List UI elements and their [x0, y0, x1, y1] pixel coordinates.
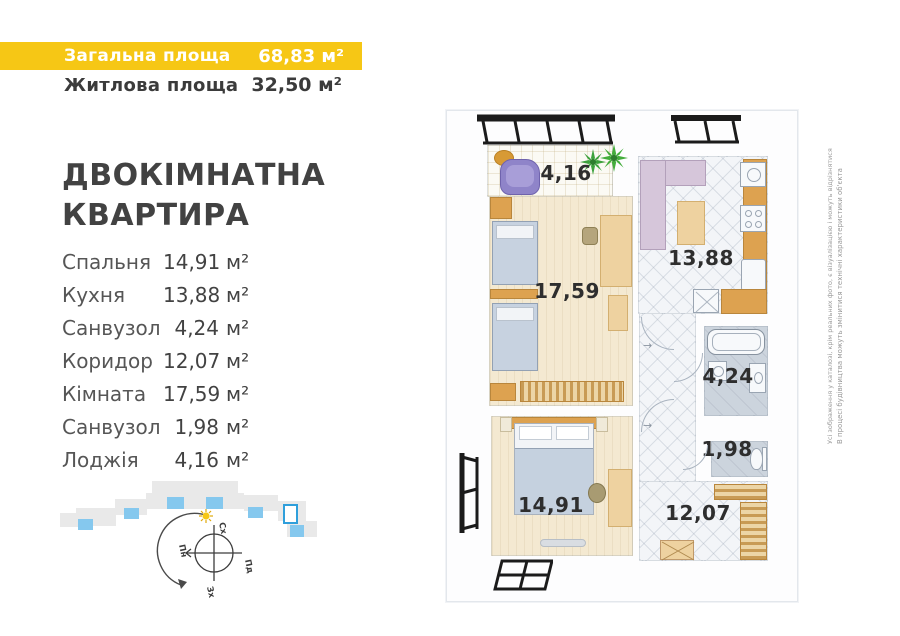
plant-icon — [600, 144, 628, 172]
kitchen-window-icon — [669, 113, 743, 147]
floor-plan: 4,16 17,59 — [446, 110, 798, 602]
site-building-block — [152, 481, 238, 493]
compass-south-label: Пд — [242, 559, 255, 575]
sink-icon — [740, 162, 766, 187]
site-building-block — [60, 513, 78, 527]
nightstand-icon — [490, 289, 538, 299]
compass-cross-icon — [186, 525, 242, 581]
room-area: 13,88 — [163, 283, 219, 307]
living-area-label: Житлова площа — [64, 75, 238, 96]
sofa-icon — [640, 160, 666, 250]
list-item: Спальня 14,91 м² — [62, 250, 258, 283]
room-name: Кухня — [62, 283, 163, 307]
room-name: Лоджія — [62, 448, 163, 472]
corridor-area-label: 12,07 — [665, 501, 731, 525]
bedroom-bottom-window-icon — [491, 557, 553, 593]
burner — [745, 210, 752, 217]
total-area-badge: Загальна площа 68,83 м² — [0, 42, 362, 70]
shelf-icon — [608, 295, 628, 331]
vent-tile-icon — [693, 289, 719, 313]
room-area: 4,16 — [163, 448, 219, 472]
nightstand-icon — [500, 417, 512, 432]
desk-icon — [608, 469, 632, 527]
site-building-section-blue — [124, 508, 139, 519]
bathtub-icon — [707, 329, 765, 355]
room-bedroom — [491, 416, 633, 556]
living-area-value: 32,50 м² — [251, 74, 342, 96]
list-item: Кухня 13,88 м² — [62, 283, 258, 316]
wc-area-label: 1,98 — [701, 437, 752, 461]
disclaimer-text: Усі зображення у каталозі, крім реальних… — [826, 148, 845, 444]
room-area: 1,98 — [163, 415, 219, 439]
armchair-cushion — [506, 165, 534, 187]
kitchen-area-label: 13,88 — [668, 246, 734, 270]
page-title: ДВОКІМНАТНА КВАРТИРА — [62, 156, 325, 236]
pillow-icon — [556, 426, 589, 440]
fridge-icon — [741, 259, 766, 291]
page-title-line2: КВАРТИРА — [62, 196, 325, 236]
room-area: 12,07 — [163, 349, 219, 373]
site-building-section-blue — [78, 519, 93, 530]
site-building-section-blue — [290, 525, 304, 537]
hall-wardrobe-icon — [714, 484, 767, 500]
room-name: Коридор — [62, 349, 163, 373]
sun-icon — [199, 509, 213, 523]
shoe-bench-icon — [660, 540, 694, 560]
room-unit: м² — [226, 316, 258, 340]
door-arc-wc — [683, 445, 708, 470]
room-unit: м² — [226, 382, 258, 406]
current-unit-highlight[interactable] — [283, 504, 298, 524]
cabinet-icon — [490, 197, 512, 219]
room-name: Санвузол — [62, 316, 163, 340]
room-name: Кімната — [62, 382, 163, 406]
disclaimer-construction-note: В процесі будівництва можуть змінитися т… — [835, 148, 845, 444]
bedroom-area-label: 14,91 — [518, 493, 584, 517]
compass-east-label: Сх — [216, 522, 228, 536]
list-item: Санвузол 4,24 м² — [62, 316, 258, 349]
bathroom-area-label: 4,24 — [702, 364, 753, 388]
list-item: Санвузол 1,98 м² — [62, 415, 258, 448]
room-area: 17,59 — [163, 382, 219, 406]
wardrobe-icon — [520, 381, 624, 402]
burner — [755, 210, 762, 217]
room-area: 14,91 — [163, 250, 219, 274]
chair-icon — [582, 227, 598, 245]
toilet-tank — [762, 447, 767, 471]
page-title-line1: ДВОКІМНАТНА — [62, 156, 325, 196]
compass: Сх Пн Пд Зх — [148, 503, 260, 599]
compass-west-label: Зх — [204, 586, 216, 599]
bed-icon — [492, 221, 538, 285]
list-item: Коридор 12,07 м² — [62, 349, 258, 382]
hall-wardrobe-icon — [740, 502, 767, 560]
living-area-badge: Житлова площа 32,50 м² — [0, 71, 362, 99]
room-name: Спальня — [62, 250, 163, 274]
burner — [745, 221, 752, 228]
room-area: 4,24 — [163, 316, 219, 340]
burner — [755, 221, 762, 228]
bathtub-inner — [712, 333, 761, 351]
living-area-label: 17,59 — [534, 279, 600, 303]
total-area-value: 68,83 м² — [258, 46, 344, 67]
loggia-area-label: 4,16 — [540, 161, 591, 185]
pillow-icon — [496, 307, 534, 321]
door-arc-bathroom — [674, 353, 703, 382]
total-area-label: Загальна площа — [64, 46, 231, 66]
sink-basin — [747, 168, 761, 182]
desk-icon — [600, 215, 632, 287]
room-unit: м² — [226, 415, 258, 439]
list-item: Кімната 17,59 м² — [62, 382, 258, 415]
loggia-window-icon — [475, 113, 617, 147]
room-area-list: Спальня 14,91 м² Кухня 13,88 м² Санвузол… — [62, 250, 258, 481]
room-unit: м² — [226, 448, 258, 472]
stove-icon — [740, 205, 766, 232]
room-kitchen — [638, 156, 768, 314]
compass-labels: Сх Пн Пд Зх — [176, 522, 255, 599]
chair-icon — [588, 483, 606, 503]
nightstand-icon — [596, 417, 608, 432]
storage-box-icon — [490, 383, 516, 401]
basin — [754, 372, 763, 384]
kitchen-counter-icon — [721, 289, 767, 314]
bed-icon — [492, 303, 538, 371]
bedroom-side-window-icon — [455, 451, 483, 535]
pillow-icon — [519, 426, 552, 440]
compass-north-label: Пн — [176, 544, 189, 559]
kitchen-table-icon — [677, 201, 705, 245]
rug-icon — [540, 539, 586, 547]
room-unit: м² — [226, 349, 258, 373]
room-name: Санвузол — [62, 415, 163, 439]
disclaimer-images-note: Усі зображення у каталозі, крім реальних… — [826, 148, 835, 444]
pillow-icon — [496, 225, 534, 239]
room-unit: м² — [226, 250, 258, 274]
armchair-icon — [500, 159, 540, 195]
room-unit: м² — [226, 283, 258, 307]
